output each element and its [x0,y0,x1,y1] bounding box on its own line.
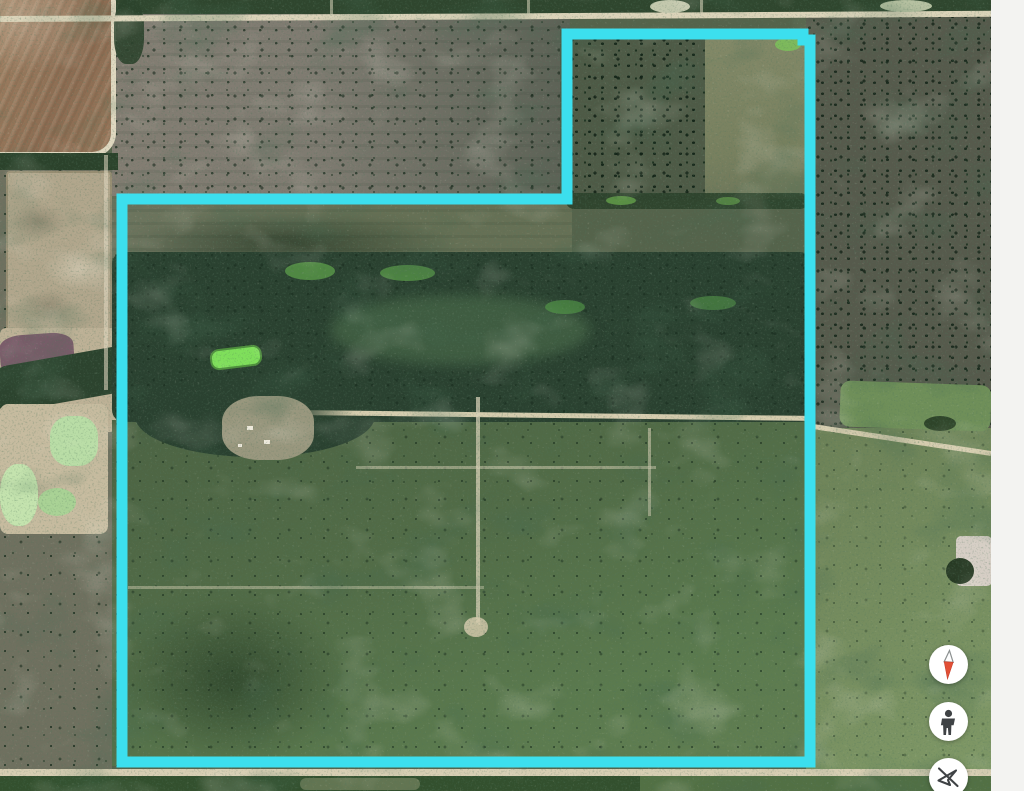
field-line [527,0,530,16]
navigation-disabled-button[interactable] [929,758,968,791]
region-topright-pasture [705,33,808,199]
building-dot [238,444,242,447]
quarry-pit-upper [6,171,112,336]
clearing [222,396,314,460]
building-dot [247,426,253,430]
bright-canopy-clump [545,300,585,314]
pegman-icon [929,702,968,741]
left-vertical-trail [104,155,108,390]
plowed-field [0,0,116,157]
trail-horizontal-lower [128,586,484,589]
trail-vertical-east [648,428,651,516]
right-panel-strip [991,0,1024,791]
app-window [0,0,1024,791]
trees-beside-field [114,0,144,64]
trail-vertical-center [476,397,480,625]
bright-canopy-clump [690,296,736,310]
compass-button[interactable] [929,645,968,684]
bright-grass-strip [775,38,801,51]
road-bottom [0,769,991,776]
region-topright-trees [560,30,712,200]
smooth-pasture-patch [839,380,991,431]
forest-texture [806,14,991,432]
tree-texture [560,30,712,200]
bottom-light-patch [300,778,420,790]
scrub-rows [112,14,570,200]
tree-strip-below-field [0,153,118,170]
tree-blob [946,558,974,584]
dark-pond [924,416,956,431]
region-notch-scrub [112,14,570,200]
bright-canopy-clump [285,262,335,280]
hedgerow-bright-spot [716,197,740,205]
hedgerow-bright-spot [606,196,636,205]
mint-pond [0,464,38,526]
region-right-forest [806,14,991,432]
field-line [330,0,333,16]
street-view-button[interactable] [929,702,968,741]
satellite-map[interactable] [0,0,991,791]
building-dot [264,440,270,444]
navigation-off-icon [929,758,968,791]
mint-pond [50,416,98,466]
light-pond-top [880,0,932,12]
trail-knob [464,617,488,637]
trail-horizontal-upper [356,466,656,469]
light-pond-top [650,0,690,13]
mint-pond [38,488,76,516]
compass-needle-icon [928,644,970,686]
field-line [700,0,703,16]
hedgerow-top-right [566,193,808,209]
bright-canopy-clump [380,265,435,281]
dark-trees-bottom-left [118,598,348,762]
